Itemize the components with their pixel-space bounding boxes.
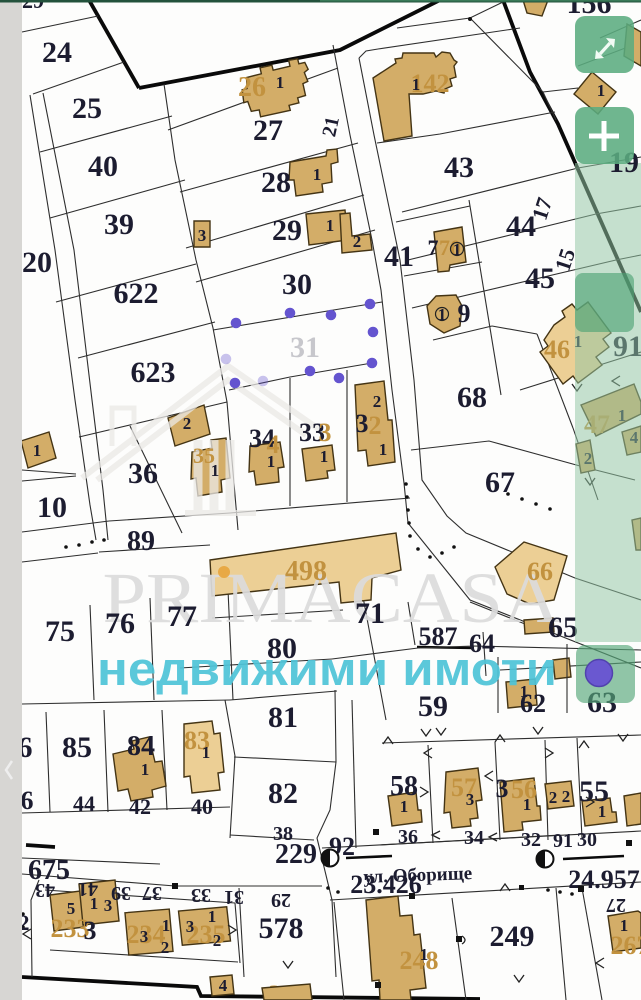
svg-text:36: 36 xyxy=(128,457,158,490)
svg-text:578: 578 xyxy=(259,912,304,945)
svg-text:39: 39 xyxy=(111,882,131,904)
svg-text:1: 1 xyxy=(202,743,211,762)
svg-text:75: 75 xyxy=(45,615,75,648)
svg-text:267: 267 xyxy=(611,931,641,960)
svg-text:81: 81 xyxy=(268,701,298,734)
svg-text:31: 31 xyxy=(224,886,244,908)
svg-text:59: 59 xyxy=(418,690,448,723)
svg-text:89: 89 xyxy=(127,526,155,557)
svg-text:40: 40 xyxy=(191,794,213,819)
svg-text:3: 3 xyxy=(84,916,97,945)
svg-text:27: 27 xyxy=(606,894,626,916)
svg-text:2: 2 xyxy=(562,787,571,806)
svg-text:1: 1 xyxy=(90,894,99,913)
svg-text:1: 1 xyxy=(379,440,388,459)
svg-text:82: 82 xyxy=(268,777,298,810)
svg-text:26: 26 xyxy=(238,72,266,103)
svg-text:2: 2 xyxy=(213,931,222,950)
svg-text:1: 1 xyxy=(520,682,529,701)
svg-text:37: 37 xyxy=(142,882,162,904)
svg-text:3: 3 xyxy=(356,409,369,438)
svg-text:71: 71 xyxy=(355,597,385,630)
svg-text:1: 1 xyxy=(267,452,276,471)
svg-text:64: 64 xyxy=(469,629,495,658)
svg-text:85: 85 xyxy=(62,731,92,764)
svg-text:1: 1 xyxy=(33,441,42,460)
svg-text:34: 34 xyxy=(464,827,484,849)
svg-text:76: 76 xyxy=(105,607,135,640)
svg-text:39: 39 xyxy=(104,208,134,241)
svg-text:3: 3 xyxy=(198,226,207,245)
svg-text:20: 20 xyxy=(22,246,52,279)
svg-text:1: 1 xyxy=(438,305,447,324)
svg-text:1: 1 xyxy=(412,75,421,94)
svg-text:66: 66 xyxy=(527,557,553,586)
svg-text:1: 1 xyxy=(326,216,335,235)
svg-text:41: 41 xyxy=(384,240,414,273)
svg-text:1: 1 xyxy=(276,73,285,92)
svg-text:31: 31 xyxy=(290,331,320,364)
svg-text:1: 1 xyxy=(313,165,322,184)
svg-text:1: 1 xyxy=(453,240,462,259)
svg-text:498: 498 xyxy=(285,556,327,587)
svg-text:2: 2 xyxy=(549,788,558,807)
svg-text:3: 3 xyxy=(466,790,475,809)
svg-text:43: 43 xyxy=(444,151,474,184)
svg-text:28: 28 xyxy=(261,166,291,199)
svg-text:9: 9 xyxy=(458,299,471,328)
svg-text:3: 3 xyxy=(496,774,509,803)
svg-text:27: 27 xyxy=(253,114,283,147)
svg-text:29: 29 xyxy=(272,214,302,247)
svg-text:42: 42 xyxy=(129,794,151,819)
svg-text:40: 40 xyxy=(88,150,118,183)
svg-text:1: 1 xyxy=(597,81,606,100)
svg-text:1: 1 xyxy=(420,945,429,964)
svg-text:1: 1 xyxy=(211,461,220,480)
svg-text:229: 229 xyxy=(275,839,317,870)
svg-text:1: 1 xyxy=(400,797,409,816)
svg-text:84: 84 xyxy=(127,731,155,762)
svg-text:3: 3 xyxy=(319,418,332,447)
svg-text:2: 2 xyxy=(373,392,382,411)
svg-text:10: 10 xyxy=(37,491,67,524)
svg-text:1: 1 xyxy=(320,447,329,466)
svg-text:77: 77 xyxy=(167,600,197,633)
svg-text:7: 7 xyxy=(428,235,439,260)
svg-text:5: 5 xyxy=(67,899,76,918)
svg-text:622: 622 xyxy=(114,277,159,310)
svg-text:29: 29 xyxy=(271,889,291,911)
svg-text:1: 1 xyxy=(523,795,532,814)
svg-text:30: 30 xyxy=(577,829,597,851)
svg-text:24: 24 xyxy=(42,36,72,69)
svg-text:3: 3 xyxy=(140,927,149,946)
svg-text:32: 32 xyxy=(521,829,541,851)
svg-text:2: 2 xyxy=(183,414,192,433)
svg-text:623: 623 xyxy=(131,356,176,389)
svg-text:1: 1 xyxy=(208,907,217,926)
svg-text:3: 3 xyxy=(186,917,195,936)
svg-text:46: 46 xyxy=(544,335,570,364)
svg-text:33: 33 xyxy=(191,884,211,906)
svg-text:6: 6 xyxy=(21,786,34,815)
svg-text:1: 1 xyxy=(162,916,171,935)
svg-text:36: 36 xyxy=(398,826,418,848)
svg-text:4: 4 xyxy=(219,976,228,995)
svg-text:2: 2 xyxy=(353,232,362,251)
svg-text:3: 3 xyxy=(104,896,113,915)
svg-text:44: 44 xyxy=(73,791,95,816)
svg-text:65: 65 xyxy=(548,611,578,644)
svg-text:1: 1 xyxy=(620,916,629,935)
svg-text:587: 587 xyxy=(419,622,458,651)
svg-text:1: 1 xyxy=(598,802,607,821)
svg-text:91: 91 xyxy=(553,830,573,852)
svg-text:249: 249 xyxy=(490,920,535,953)
svg-text:80: 80 xyxy=(267,632,297,665)
svg-text:2: 2 xyxy=(161,938,170,957)
svg-text:1: 1 xyxy=(141,760,150,779)
svg-text:30: 30 xyxy=(282,268,312,301)
svg-text:67: 67 xyxy=(485,466,515,499)
svg-text:68: 68 xyxy=(457,381,487,414)
svg-text:2: 2 xyxy=(369,411,382,440)
svg-text:25: 25 xyxy=(72,92,102,125)
svg-text:43: 43 xyxy=(35,879,55,901)
